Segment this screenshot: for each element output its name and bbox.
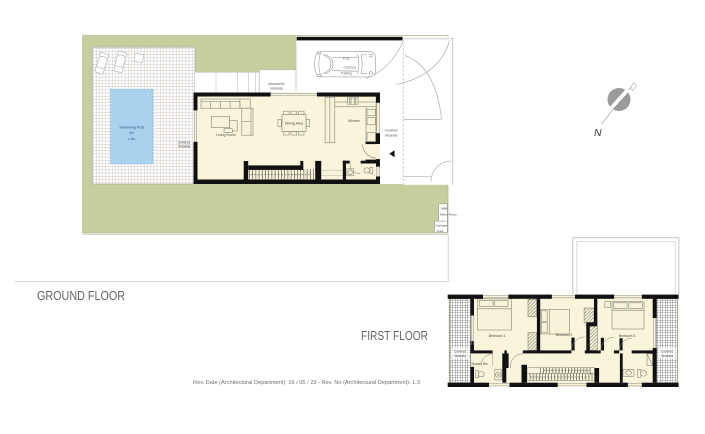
svg-text:FIRST FLOOR: FIRST FLOOR [361,328,428,343]
svg-text:Meter Room: Meter Room [440,213,457,217]
svg-text:Covered: Covered [343,66,355,70]
svg-text:Rev. Date (Architectural Depar: Rev. Date (Architectural Department): 16… [193,380,420,386]
svg-text:N: N [594,127,602,139]
svg-text:Veranda: Veranda [661,354,673,358]
svg-text:Living Room: Living Room [216,133,236,137]
svg-text:Swimming Pool: Swimming Pool [119,126,144,130]
svg-text:Bedroom 3: Bedroom 3 [619,334,636,338]
svg-text:Covered: Covered [385,128,398,132]
svg-text:Bedroom 1: Bedroom 1 [489,334,506,338]
svg-text:Garbage: Garbage [436,224,448,228]
svg-text:ABB: ABB [441,207,447,211]
svg-text:P 01: P 01 [343,57,350,61]
svg-text:Dining Area: Dining Area [285,121,303,125]
svg-text:Veranda: Veranda [385,133,398,137]
svg-text:Kitchen: Kitchen [348,119,360,123]
svg-text:Shower Rm.: Shower Rm. [471,362,489,366]
svg-text:Uncovered: Uncovered [268,82,285,86]
svg-text:5m: 5m [129,131,134,135]
svg-text:x 3m: x 3m [128,137,136,141]
svg-text:Parking: Parking [341,71,352,75]
svg-text:Area: Area [437,229,444,233]
svg-text:Veranda: Veranda [270,86,283,90]
svg-text:Bedroom 2: Bedroom 2 [556,333,573,337]
svg-text:Veranda: Veranda [454,354,466,358]
svg-text:GROUND FLOOR: GROUND FLOOR [37,288,125,303]
svg-text:Veranda: Veranda [178,145,190,149]
